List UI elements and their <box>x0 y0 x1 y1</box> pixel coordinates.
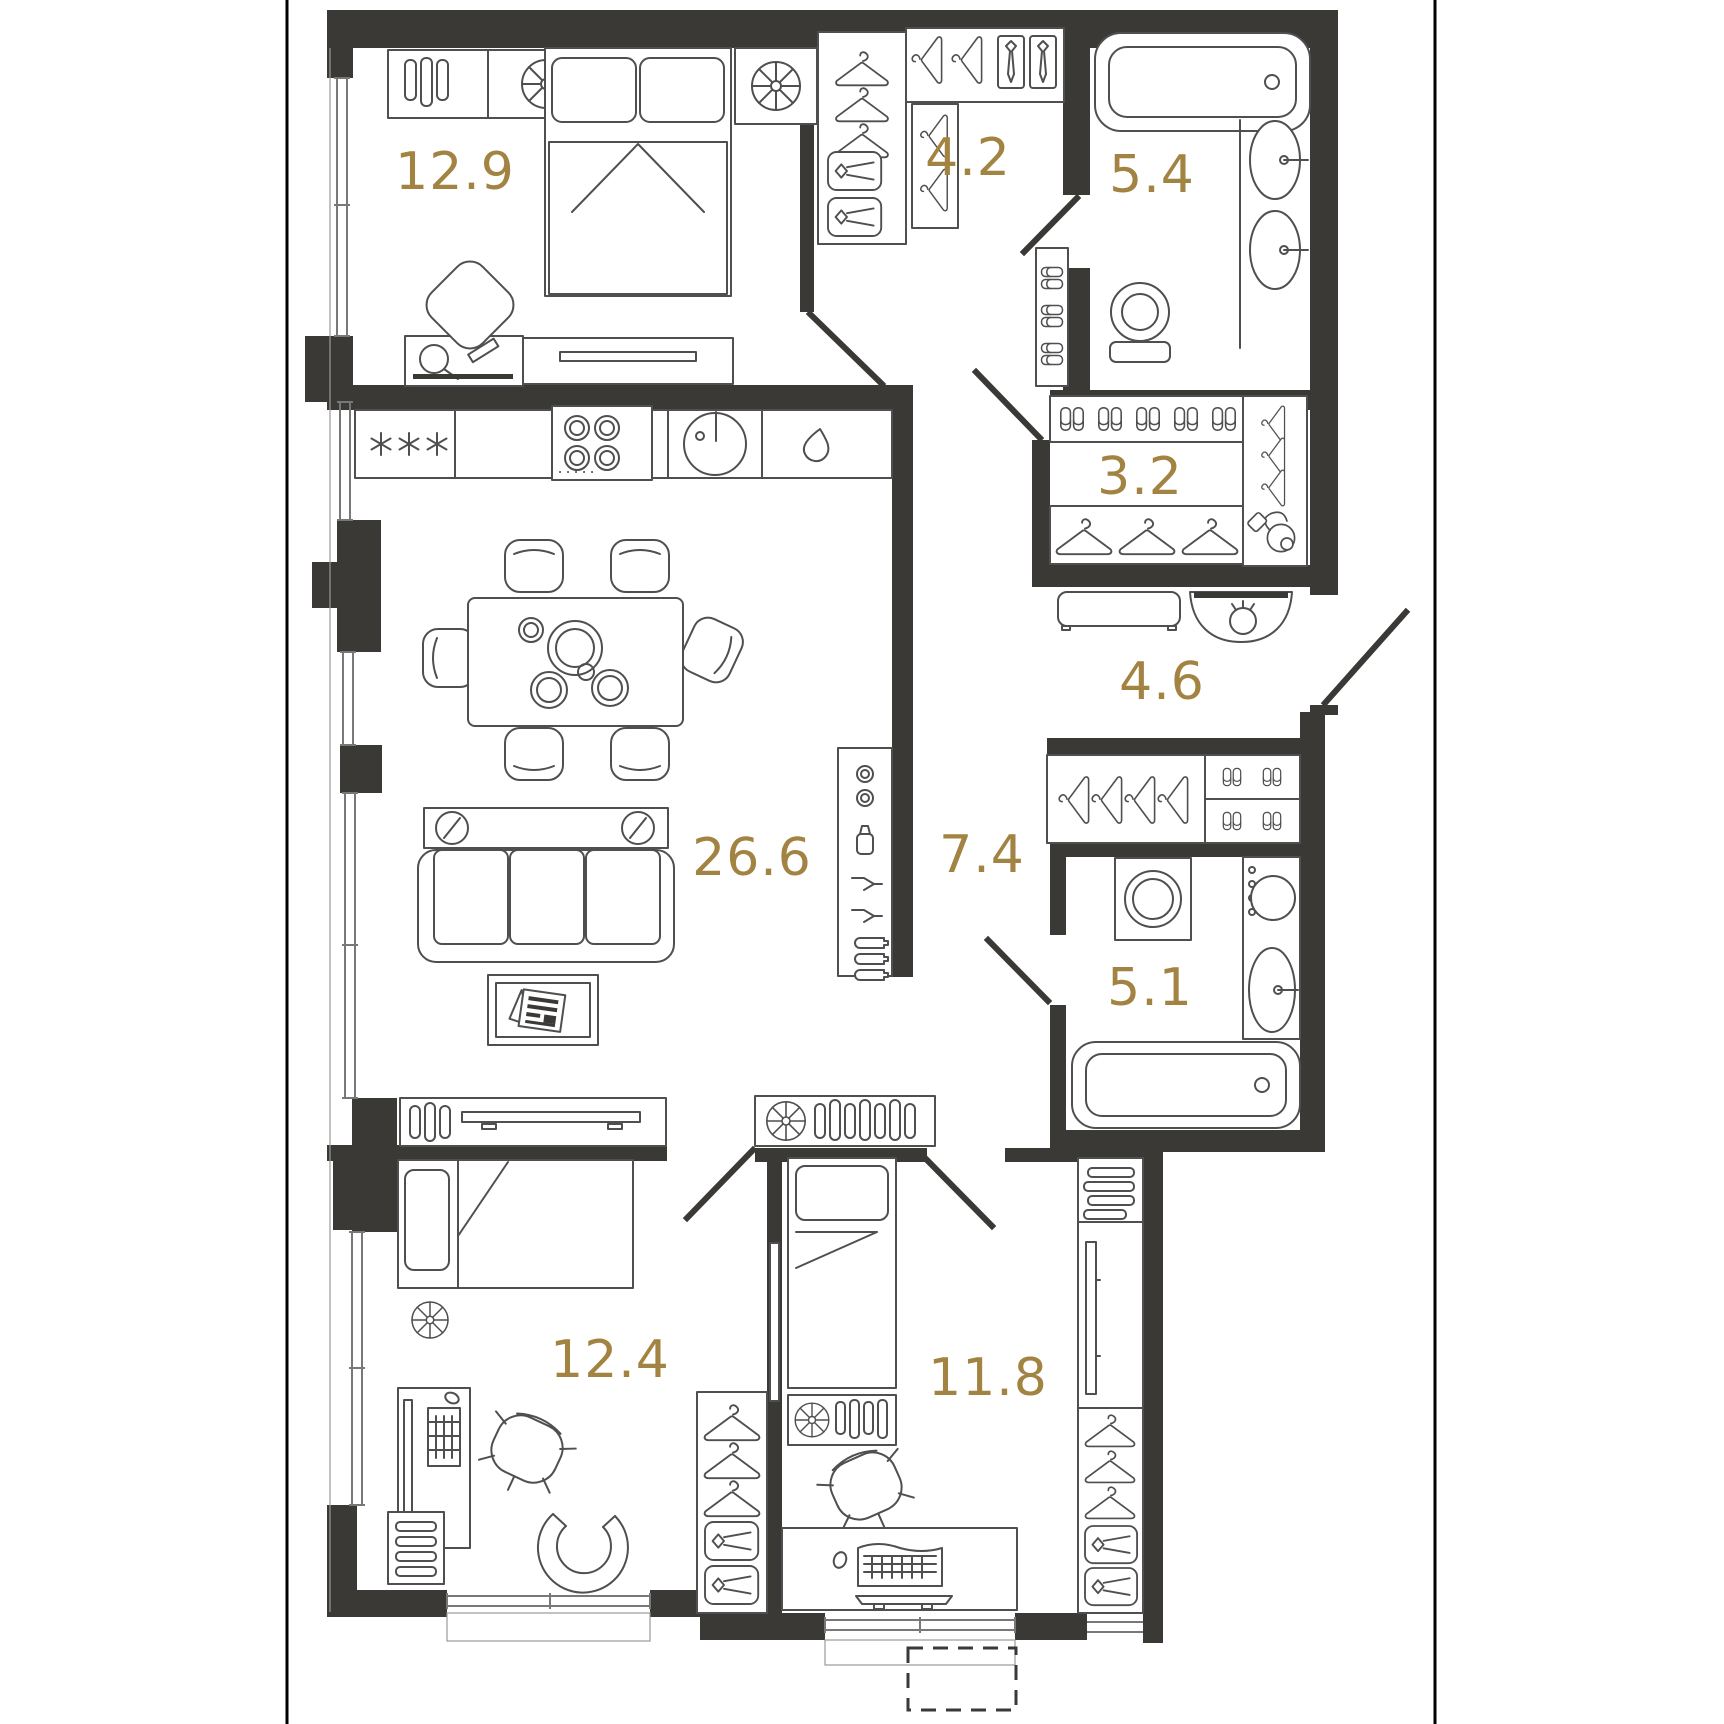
single-bed-icon <box>788 1158 896 1388</box>
bottle-icon <box>855 938 888 980</box>
shirt-drawer-icon <box>1085 1526 1137 1563</box>
wardrobe-shelf-icon <box>388 50 488 118</box>
bedroom-right-door <box>927 1160 992 1226</box>
nightstand-right-icon <box>735 48 817 124</box>
hall-wardrobe-icon <box>1047 755 1300 843</box>
tv-panel-icon <box>1086 1242 1096 1394</box>
tv-panel-icon <box>770 1243 779 1401</box>
floor-plan-page: 12.9 4.2 5.4 3.2 4.6 26.6 7.4 5.1 12.4 1… <box>0 0 1724 1724</box>
wall-shelf-icon <box>424 808 668 848</box>
room-corridor <box>1047 755 1300 843</box>
tie-box-icon <box>998 36 1024 88</box>
tv-console-icon <box>400 1098 666 1146</box>
bathroom-bottom-door <box>988 940 1048 1001</box>
table-lamp-icon <box>752 62 800 110</box>
bag-icon <box>1230 608 1256 634</box>
desk-chair-icon <box>468 1400 581 1508</box>
storage-door <box>976 372 1040 438</box>
tie-box-icon <box>1030 36 1056 88</box>
label-storage: 3.2 <box>1097 447 1183 507</box>
dining-table-icon <box>423 540 748 780</box>
lounge-chair-icon <box>538 1514 628 1593</box>
window-bedroom-master <box>334 78 350 336</box>
window-living-2 <box>340 652 356 745</box>
vent-cabinet-icon <box>755 1096 935 1146</box>
window-living-1 <box>337 402 353 520</box>
keyboard-icon <box>858 1544 942 1586</box>
window-bedroom-right-bottom <box>825 1617 1015 1665</box>
bar-cabinet-icon <box>838 748 892 980</box>
fan-icon <box>795 1403 829 1437</box>
label-bedroom-right: 11.8 <box>928 1348 1048 1408</box>
label-bathroom-top: 5.4 <box>1109 145 1195 205</box>
label-bedroom-left: 12.4 <box>550 1330 670 1390</box>
bag-console-icon <box>1190 592 1292 642</box>
toilet-icon <box>1110 283 1170 362</box>
bench-icon <box>1058 592 1180 630</box>
tv-icon <box>462 1112 640 1122</box>
shirt-drawer-icon <box>705 1522 758 1560</box>
room-living-kitchen <box>355 406 892 1146</box>
label-corridor: 7.4 <box>939 825 1025 885</box>
double-bed-icon <box>545 48 731 296</box>
double-sink-icon <box>1240 120 1308 348</box>
tv-console-icon <box>523 338 733 384</box>
slipper-shelf-icon <box>1036 248 1068 386</box>
label-bathroom-bottom: 5.1 <box>1107 958 1193 1018</box>
cooktop-icon <box>552 406 652 480</box>
entry-door <box>1325 612 1406 703</box>
room-bedroom-master <box>388 48 817 386</box>
floor-plan-drawing <box>0 0 1724 1724</box>
bathtub-icon <box>1095 33 1310 131</box>
wardrobe-icon <box>1078 1158 1143 1613</box>
coffee-table-icon <box>488 975 598 1045</box>
tv-icon <box>560 352 696 361</box>
label-living-kitchen: 26.6 <box>692 828 812 888</box>
bedroom-master-door <box>810 314 882 384</box>
bedroom-left-door <box>687 1150 753 1218</box>
label-walk-in-closet: 4.2 <box>925 128 1011 188</box>
single-bed-icon <box>398 1160 633 1288</box>
shirt-drawer-icon <box>828 152 881 190</box>
shirt-drawer-icon <box>828 198 881 236</box>
table-lamp-icon <box>412 1302 448 1338</box>
kitchen-sink-icon <box>684 412 746 475</box>
window-bedroom-left-side <box>349 1232 365 1505</box>
vent-cabinet-icon <box>788 1395 896 1445</box>
sink-icon <box>1243 857 1300 1039</box>
fan-icon <box>767 1102 805 1140</box>
room-entry-hall <box>1058 592 1292 642</box>
wardrobe-icon <box>697 1392 767 1613</box>
vent-grille-icon <box>388 1512 444 1584</box>
kitchen-counter <box>355 406 892 480</box>
window-right-corner <box>1087 1622 1143 1632</box>
window-living-3 <box>342 793 358 1098</box>
washing-machine-icon <box>1115 858 1191 940</box>
desk-icon <box>782 1528 1017 1610</box>
sofa-icon <box>418 850 674 962</box>
window-bedroom-left-bottom <box>447 1593 650 1641</box>
bathroom-top-door <box>1024 198 1077 252</box>
bathtub-icon <box>1072 1042 1300 1128</box>
balcony-dashed-outline <box>908 1648 1016 1710</box>
label-bedroom-master: 12.9 <box>395 142 515 202</box>
label-entry-hall: 4.6 <box>1119 652 1205 712</box>
